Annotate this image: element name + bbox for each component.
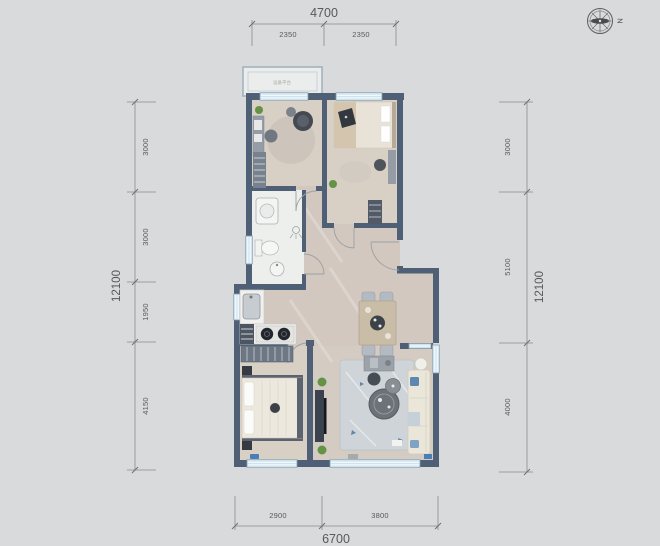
cabinet-item	[385, 360, 391, 366]
dimension-top: 4700 2350 2350	[249, 6, 399, 46]
coffee-table-deco	[378, 398, 382, 402]
artwork-dot	[345, 116, 348, 119]
throw-pillow	[410, 440, 419, 448]
cabinet-item	[370, 358, 378, 368]
side-table	[286, 107, 296, 117]
window-bathroom-left	[246, 236, 253, 264]
deco-dot	[379, 325, 382, 328]
centerpiece	[370, 316, 385, 331]
pillow	[381, 126, 390, 142]
floor-plan-page: 设备平台	[0, 0, 660, 546]
dim-right-seg1: 5100	[503, 258, 512, 276]
dining-chair	[362, 345, 375, 356]
pillow	[381, 106, 390, 122]
dimension-right: 12100 3000 5100 4000	[499, 99, 546, 475]
side-table-deco	[392, 385, 395, 388]
washer-drum	[260, 204, 274, 218]
window-bay-corner	[409, 344, 431, 349]
balcony: 设备平台	[243, 67, 322, 96]
round-side-table	[415, 358, 427, 370]
pillow	[244, 382, 254, 406]
armchair-cushion	[297, 115, 309, 127]
compass-north-label: N	[616, 18, 625, 23]
wardrobe	[241, 346, 293, 362]
rug	[339, 161, 371, 183]
plate	[385, 333, 391, 339]
throw-pillow	[410, 377, 419, 386]
window-living-right	[433, 345, 440, 373]
window-master-bottom	[247, 460, 297, 468]
nightstand	[242, 440, 252, 450]
bed-frame	[242, 375, 303, 378]
ceiling-lamp	[270, 403, 280, 413]
tv-console	[315, 390, 324, 442]
dim-top-seg1: 2350	[352, 30, 370, 39]
dim-right-seg0: 3000	[503, 138, 512, 156]
compass-hub	[599, 20, 601, 22]
dimension-bottom: 2900 3800 6700	[232, 496, 441, 546]
dim-left-seg1: 3000	[141, 228, 150, 246]
dim-bottom-total: 6700	[322, 532, 350, 546]
desk-pad	[254, 134, 262, 142]
sofa-blanket	[408, 412, 420, 426]
window-bedroom2-top	[260, 93, 308, 101]
window-kitchen-left	[234, 294, 241, 320]
plant	[329, 180, 337, 188]
window-living-bottom	[330, 460, 420, 468]
toilet	[262, 241, 279, 255]
compass-icon: N	[588, 9, 625, 34]
burner	[278, 328, 290, 340]
window-sill-item	[348, 454, 358, 459]
dining-chair	[380, 345, 393, 356]
window-bedroom3-top	[336, 93, 382, 101]
plant	[318, 446, 327, 455]
dim-left-total: 12100	[111, 270, 123, 302]
toilet-tank	[255, 240, 262, 256]
dim-left-seg3: 4150	[141, 397, 150, 415]
coffee-table-deco	[388, 406, 391, 409]
desk-chair	[374, 159, 386, 171]
desk-pad	[254, 120, 262, 130]
dim-left-seg0: 3000	[141, 138, 150, 156]
floor-plan-canvas: 设备平台	[0, 0, 660, 546]
bed-frame	[242, 438, 303, 441]
plant	[318, 378, 327, 387]
nightstand	[242, 366, 252, 376]
pillow	[244, 410, 254, 434]
desk	[388, 150, 396, 184]
dim-bottom-seg0: 2900	[269, 511, 287, 520]
dim-top-total: 4700	[310, 6, 338, 20]
dim-left-seg2: 1950	[141, 303, 150, 321]
tv	[324, 398, 327, 434]
window-sill-item	[250, 454, 259, 459]
chair	[368, 373, 381, 386]
book	[392, 440, 402, 446]
headboard	[392, 102, 396, 148]
burner	[261, 328, 273, 340]
dim-right-seg2: 4000	[503, 398, 512, 416]
desk-chair	[265, 130, 278, 143]
dim-right-total: 12100	[534, 271, 546, 303]
dim-top-seg0: 2350	[279, 30, 297, 39]
plate	[365, 307, 371, 313]
dimension-left: 12100 3000 3000 1950 4150	[111, 99, 156, 473]
closet	[368, 200, 382, 224]
balcony-label: 设备平台	[273, 79, 291, 86]
window-sill-item	[424, 454, 432, 459]
plant	[255, 106, 263, 114]
faucet	[276, 264, 278, 266]
deco-dot	[374, 319, 377, 322]
dim-bottom-seg1: 3800	[371, 511, 389, 520]
faucet	[250, 296, 253, 299]
bed-footboard	[297, 378, 303, 438]
